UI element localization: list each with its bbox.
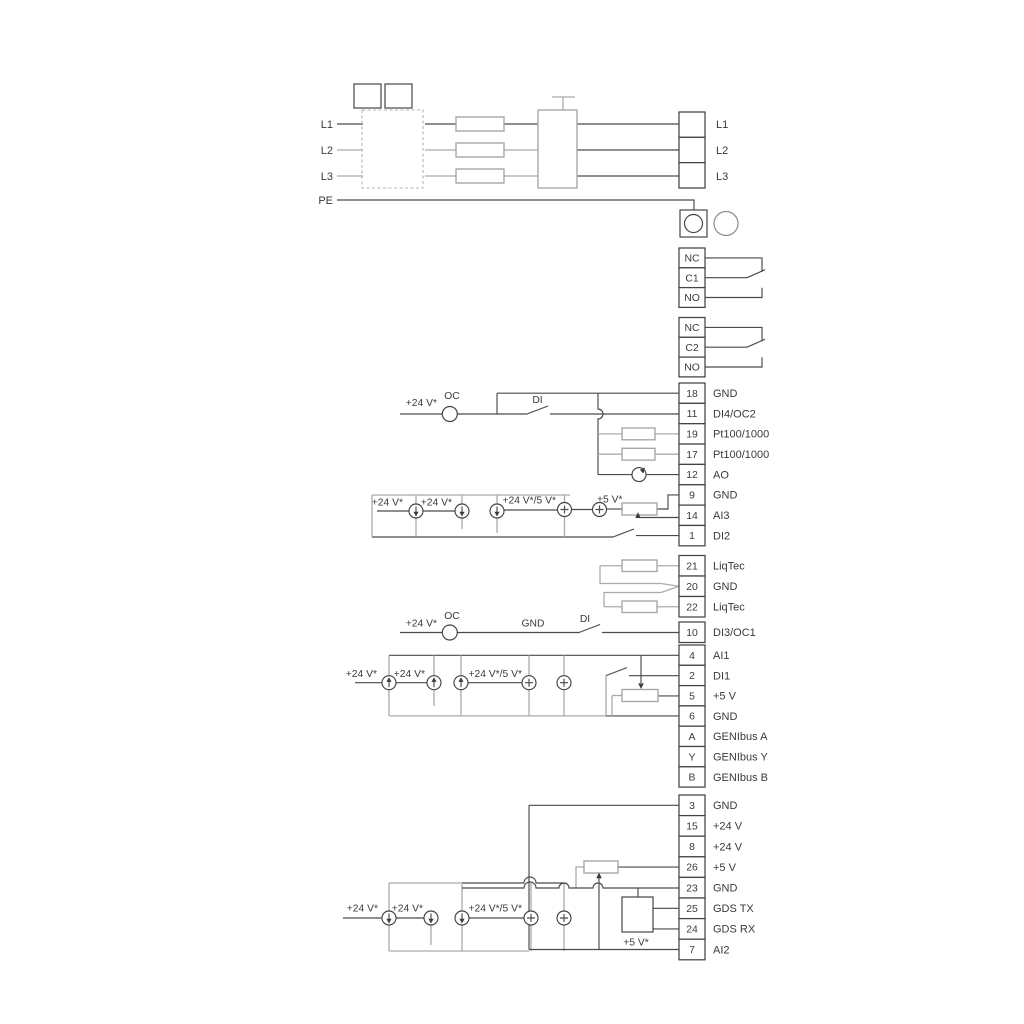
resistor-icon [622, 601, 657, 613]
terminal-number: 1 [689, 531, 695, 542]
annotation-v5: +5 V* [623, 938, 648, 949]
terminal-label: AI2 [713, 944, 730, 956]
fuse-icon [456, 143, 504, 157]
annotation-gnd: GND [522, 619, 545, 630]
terminal-label: Pt100/1000 [713, 449, 769, 461]
terminal-label: GND [713, 490, 738, 502]
resistor-icon [622, 428, 655, 440]
annotation-v24: +24 V* [347, 904, 378, 915]
terminal-number: 5 [689, 691, 695, 702]
wire [705, 288, 762, 298]
terminal-number: B [689, 773, 696, 784]
terminal-label: GND [713, 883, 738, 895]
terminal-label: +24 V [713, 821, 743, 833]
terminal-label: GENIbus Y [713, 751, 768, 763]
terminal-label: LiqTec [713, 602, 745, 614]
terminal-number: NC [684, 254, 700, 265]
terminal-number: 24 [686, 925, 698, 936]
terminal-number: 26 [686, 863, 698, 874]
terminal-label: GDS TX [713, 903, 754, 915]
potentiometer-icon [622, 690, 658, 702]
earth-ground-icon [714, 212, 738, 236]
mains-left-labels: L1 L2 L3 PE [318, 119, 333, 207]
terminal-cell [679, 163, 705, 188]
oc-contact-icon [442, 407, 457, 422]
mains-out-label-l1: L1 [716, 119, 728, 131]
terminal-number: Y [689, 752, 696, 763]
wire [613, 529, 634, 537]
terminal-label: DI2 [713, 530, 730, 542]
wire [661, 584, 679, 587]
terminal-label: AI1 [713, 650, 730, 662]
terminal-number: A [689, 732, 696, 743]
terminal-number: 25 [686, 904, 698, 915]
terminal-number: 12 [686, 470, 698, 481]
wire [462, 877, 564, 883]
fuse-icon [456, 169, 504, 183]
annotation-v24: +24 V* [346, 669, 377, 680]
generated-diagram: NCC1NONCC2NO18GND11DI4/OC219Pt100/100017… [337, 84, 769, 960]
terminal-label: DI4/OC2 [713, 408, 756, 420]
terminal-number: 11 [687, 409, 698, 420]
wire [657, 495, 679, 509]
wire [606, 668, 627, 676]
resistor-icon [622, 448, 655, 460]
resistor-icon [622, 560, 657, 572]
terminal-label: DI3/OC1 [713, 627, 756, 639]
terminal-label: DI1 [713, 670, 730, 682]
annotation-v5: +5 V* [597, 495, 622, 506]
mains-label-l2: L2 [321, 145, 333, 157]
terminal-number: 3 [689, 801, 695, 812]
ac-symbol-box [354, 84, 381, 108]
terminal-label: +24 V [713, 841, 743, 853]
annotation-v24: +24 V* [406, 398, 437, 409]
wire [576, 867, 584, 888]
wire [747, 339, 765, 347]
wire [661, 586, 679, 592]
terminal-label: AI3 [713, 510, 730, 522]
terminal-label: GENIbus A [713, 731, 768, 743]
terminal-number: 9 [689, 491, 695, 502]
annotation-v24_5: +24 V*/5 V* [468, 669, 522, 680]
annotation-oc: OC [444, 391, 460, 402]
terminal-label: GENIbus B [713, 772, 768, 784]
terminal-number: 21 [686, 561, 698, 572]
wire [705, 357, 762, 367]
terminal-number: NO [684, 293, 700, 304]
terminal-label: GND [713, 711, 738, 723]
annotation-di: DI [532, 395, 542, 406]
mains-out-label-l2: L2 [716, 145, 728, 157]
terminal-number: 20 [686, 582, 698, 593]
annotation-v24: +24 V* [406, 619, 437, 630]
wire [527, 406, 548, 414]
terminal-label: LiqTec [713, 561, 745, 573]
terminal-number: 18 [686, 389, 698, 400]
terminal-label: GND [713, 388, 738, 400]
annotation-v24_5: +24 V*/5 V* [502, 496, 556, 507]
wire [337, 200, 694, 210]
wiring-diagram: L1 L2 L3 PE L1 L2 L3 NCC1NONCC2NO18GND11… [0, 0, 1024, 1024]
mains-label-l1: L1 [321, 119, 333, 131]
terminal-number: 17 [686, 450, 698, 461]
terminal-number: NC [684, 323, 700, 334]
annotation-v24_5: +24 V*/5 V* [468, 904, 522, 915]
terminal-label: GND [713, 800, 738, 812]
main-switch-box [538, 110, 577, 188]
oc-contact-icon [442, 625, 457, 640]
terminal-number: 8 [689, 842, 695, 853]
terminal-number: 14 [686, 511, 698, 522]
annotation-v24: +24 V* [394, 669, 425, 680]
annotation-di: DI [580, 614, 590, 625]
wire [747, 270, 765, 278]
converter-box [362, 110, 423, 188]
terminal-cell [679, 137, 705, 162]
terminal-number: 4 [689, 651, 695, 662]
terminal-number: 6 [689, 712, 695, 723]
fuse-icon [456, 117, 504, 131]
mains-label-l3: L3 [321, 171, 333, 183]
annotation-v24: +24 V* [372, 498, 403, 509]
terminal-number: C2 [685, 343, 699, 354]
terminal-number: 22 [686, 602, 698, 613]
terminal-number: C1 [685, 273, 699, 284]
terminal-number: 2 [689, 671, 695, 682]
mains-output-labels: L1 L2 L3 [716, 119, 728, 183]
mains-out-label-l3: L3 [716, 171, 728, 183]
terminal-label: GDS RX [713, 924, 756, 936]
terminal-number: 19 [686, 429, 698, 440]
annotation-v24: +24 V* [392, 904, 423, 915]
terminal-cell [679, 112, 705, 137]
annotation-v24: +24 V* [421, 498, 452, 509]
wiper-arrow-down [638, 683, 644, 689]
wire [579, 625, 600, 633]
terminal-label: +5 V [713, 691, 737, 703]
pe-circle-icon [685, 215, 703, 233]
terminal-number: 15 [686, 822, 698, 833]
terminal-number: 10 [686, 628, 698, 639]
gds-sensor-box [622, 897, 653, 932]
terminal-label: Pt100/1000 [713, 429, 769, 441]
annotation-oc: OC [444, 611, 460, 622]
terminal-number: 7 [689, 945, 695, 956]
potentiometer-icon [584, 861, 618, 873]
potentiometer-icon [622, 503, 657, 515]
terminal-label: GND [713, 581, 738, 593]
mains-label-pe: PE [318, 195, 333, 207]
terminal-number: NO [684, 363, 700, 374]
terminal-label: AO [713, 469, 729, 481]
terminal-label: +5 V [713, 862, 737, 874]
wire [705, 258, 762, 272]
wire [705, 327, 762, 341]
dc-symbol-box [385, 84, 412, 108]
diagram-canvas: L1 L2 L3 PE L1 L2 L3 NCC1NONCC2NO18GND11… [0, 0, 1024, 1024]
terminal-number: 23 [686, 883, 698, 894]
